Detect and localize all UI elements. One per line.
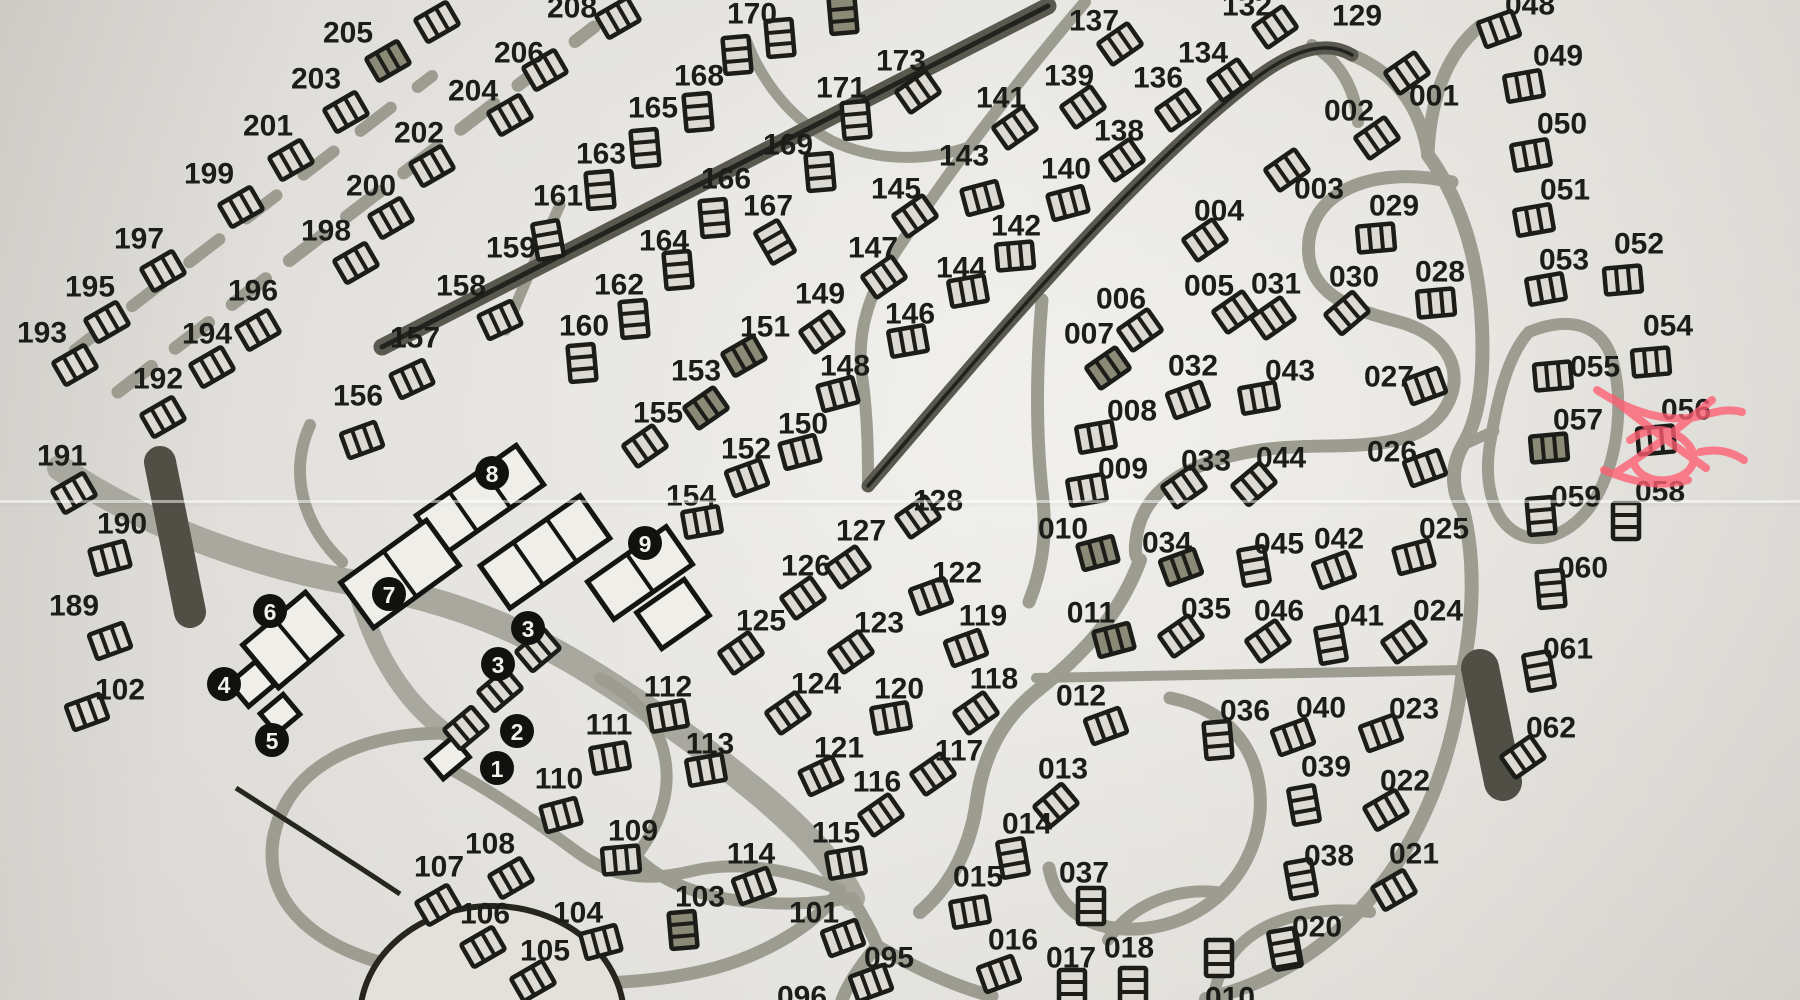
lot-label: 018 [1104,932,1154,965]
cabin-icon [722,36,751,74]
cabin-stripe [845,125,869,127]
cabin-icon [828,0,857,34]
lot-label: 022 [1380,765,1430,798]
road-vertical-007 [1029,300,1044,602]
lot-label: 138 [1094,115,1144,148]
cabin-icon [1372,870,1416,911]
lot-label: 027 [1364,361,1414,394]
lot-label: 016 [988,924,1038,957]
cabin-icon [826,546,870,588]
cabin-outline [1313,552,1356,589]
cabin-outline [755,220,796,264]
cabin-stripe [633,141,657,143]
cabin-icon [619,300,648,338]
lot-label: 013 [1038,753,1088,786]
lot-label: 061 [1543,633,1593,666]
cabin-outline [141,251,185,292]
cabin-outline [826,546,870,588]
cabin-outline [580,925,622,959]
lot-label: 030 [1329,261,1379,294]
road-curve-192 [300,425,342,562]
cabin-stripe [588,183,612,185]
lot-label: 034 [1142,527,1192,560]
lot-label: 126 [781,550,831,583]
lot-label: 036 [1220,695,1270,728]
cabin-icon [567,344,596,382]
lot-label: 096 [777,981,827,1000]
cabin-icon [1504,70,1544,102]
lot-label: 020 [1292,911,1342,944]
cabin-outline [89,623,132,660]
cabin-stripe [1554,436,1556,460]
lot-label: 004 [1194,195,1244,228]
cabin-icon [683,93,712,131]
lot-label: 003 [1294,173,1344,206]
cabin-icon [415,2,459,43]
lot-label: 041 [1334,600,1384,633]
cabin-outline [410,146,454,187]
cabin-outline [1504,70,1544,102]
lot-label: 144 [936,252,986,285]
lot-label: 123 [854,607,904,640]
lot-label: 115 [812,817,860,850]
lot-label: 194 [182,318,232,351]
lot-label: 189 [49,590,99,623]
lot-label: 015 [953,861,1003,894]
cabin-outline [841,101,870,139]
cabin-stripe [844,113,868,115]
cabin-outline [567,344,596,382]
cabin-stripe [622,312,646,314]
cabin-outline [683,93,712,131]
cabin-stripe [1529,509,1553,511]
cabin-stripe [1369,227,1371,251]
lot-label: 046 [1254,595,1304,628]
cabin-icon [1078,888,1104,924]
lot-label: 145 [871,173,921,206]
cabin-stripe [686,105,710,107]
cabin-icon [585,171,614,209]
cabin-icon [540,798,582,832]
cabin-icon [89,623,132,660]
lot-label: 114 [727,838,776,871]
cabin-stripe [626,848,628,872]
cabin-stripe [1429,292,1431,316]
cabin-outline [950,896,990,928]
lot-label: 125 [736,605,786,638]
cabin-stripe [667,275,691,277]
cabin-outline [668,911,697,949]
facility-marker-7: 7 [372,577,406,611]
lot-label: 157 [390,322,440,355]
lot-label: 045 [1254,528,1304,561]
cabin-stripe [634,153,658,155]
cabin-stripe [808,165,832,167]
lot-label: 165 [628,92,678,125]
cabin-icon [341,422,384,459]
lot-label: 023 [1389,693,1439,726]
cabin-icon [826,847,866,879]
cabin-outline [800,311,844,353]
cabin-stripe [672,935,696,937]
lot-label: 197 [114,223,164,256]
cabin-stripe [614,849,616,873]
cabin-icon [668,911,697,949]
lot-label: 049 [1533,40,1583,73]
cabin-icon [1120,968,1146,1000]
lot-label: 005 [1184,270,1234,303]
lot-label: 151 [740,311,790,344]
lot-label: 101 [789,897,839,930]
cabin-outline [415,2,459,43]
lot-label: 038 [1304,840,1354,873]
paper-fold-crease [0,500,1800,503]
scanned-site-map: 1951931971992012032051961941921911901891… [0,0,1800,1000]
facility-marker-number: 5 [266,728,279,754]
cabin-outline [719,632,763,674]
cabin-stripe [832,20,856,22]
cabin-outline [1514,204,1554,236]
cabin-outline [623,425,667,467]
cabin-stripe [1546,365,1548,389]
cabin-outline [1372,870,1416,911]
cabin-icon [755,220,796,264]
lot-label: 048 [1505,0,1555,22]
lot-label: 029 [1369,190,1419,223]
cabin-stripe [726,60,750,62]
cabin-stripe [1542,437,1544,461]
cabin-outline [1206,940,1232,976]
lot-label: 154 [666,480,716,513]
cabin-outline [369,198,413,239]
cabin-stripe [570,356,594,358]
cabin-icon [1085,708,1128,745]
lot-label: 200 [346,170,396,203]
cabin-outline [540,798,582,832]
lot-label: 206 [494,37,544,70]
cabin-icon [699,199,728,237]
cabin-stripe [571,368,595,370]
cabin-stripe [666,263,690,265]
lot-label: 150 [778,408,828,441]
dark-patch-left [160,462,190,612]
lot-label: 052 [1614,228,1664,261]
cabin-icon [1526,273,1566,305]
cabin-outline [954,692,998,734]
lot-label: 149 [795,278,845,311]
lot-label: 107 [414,851,464,884]
cabin-outline [945,630,988,667]
facility-marker-number: 2 [511,719,524,745]
cabin-icon [390,360,434,399]
dark-patch-right [1480,668,1503,782]
lot-label: 105 [520,935,570,968]
lot-label: 171 [816,72,866,105]
lot-label: 170 [727,0,777,31]
lot-label: 142 [991,210,1041,243]
cabin-outline [602,845,640,874]
lot-label: 167 [743,190,793,223]
lot-label: 104 [553,897,603,930]
cabin-icon [950,896,990,928]
cabin-outline [1251,297,1295,339]
lot-label: 037 [1059,857,1109,890]
cabin-icon [596,0,640,38]
cabin-outline [89,541,131,575]
lot-label: 162 [594,269,644,302]
lot-label: 112 [644,671,692,704]
lot-label: 160 [559,310,609,343]
lot-label: 168 [674,60,724,93]
cabin-outline [996,241,1034,270]
cabin-icon [1511,139,1551,171]
cabin-outline [1086,347,1130,389]
cabin-outline [1604,265,1642,294]
cabin-outline [1511,139,1551,171]
cabin-outline [1078,888,1104,924]
cabin-outline [684,387,728,429]
facility-marker-3: 3 [481,647,515,681]
cabin-stripe [1656,350,1658,374]
cabin-icon [478,301,522,340]
lot-label: 204 [448,75,498,108]
lot-label: 113 [686,728,734,761]
lot-label: 127 [836,515,886,548]
cabin-icon [590,742,630,774]
lot-label: 010 [1205,982,1255,1000]
cabin-outline [1526,273,1566,305]
lot-label: 060 [1558,552,1608,585]
cabin-outline [1417,288,1455,317]
cabin-icon [1047,186,1089,220]
cabin-stripe [1540,594,1564,596]
cabin-icon [53,345,97,386]
lot-label: 014 [1002,808,1052,841]
cabin-icon [1288,785,1320,825]
cabin-outline [53,345,97,386]
lot-label: 110 [535,763,583,796]
facility-marker-8: 8 [475,456,509,490]
cabin-stripe [831,8,855,10]
lot-label: 191 [37,440,87,473]
cabin-stripe [1558,364,1560,388]
lot-label: 007 [1064,318,1114,351]
facility-marker-6: 6 [253,594,287,628]
facility-marker-number: 8 [486,461,499,487]
lot-label: 136 [1133,62,1183,95]
lot-label: 024 [1413,595,1463,628]
lot-label: 057 [1553,404,1603,437]
cabin-icon [800,311,844,353]
lot-label: 134 [1178,37,1228,70]
cabin-icon [410,146,454,187]
lot-label: 201 [243,110,293,143]
lot-label: 001 [1409,80,1459,113]
lot-label: 051 [1540,174,1590,207]
cabin-outline [334,243,378,284]
cabin-icon [1357,223,1395,252]
lot-label: 118 [970,663,1018,696]
cabin-outline [190,347,234,388]
lot-label: 132 [1222,0,1272,23]
cabin-outline [1357,223,1395,252]
cabin-icon [978,956,1021,993]
cabin-stripe [1628,268,1630,292]
cabin-stripe [623,324,647,326]
lot-label: 021 [1389,838,1439,871]
cabin-stripe [769,43,793,45]
lot-label: 202 [394,117,444,150]
cabin-icon [1604,265,1642,294]
cabin-icon [190,347,234,388]
cabin-icon [719,632,763,674]
cabin-outline [648,700,688,732]
lot-label: 035 [1181,593,1231,626]
cabin-icon [1530,433,1568,462]
cabin-outline [1085,708,1128,745]
lot-label: 006 [1096,283,1146,316]
cabin-stripe [1530,521,1554,523]
cabin-outline [699,199,728,237]
cabin-icon [580,925,622,959]
cabin-stripe [1207,745,1231,747]
cabin-stripe [1644,351,1646,375]
facility-marker-4: 4 [207,667,241,701]
lot-label: 109 [608,815,658,848]
facility-marker-5: 5 [255,723,289,757]
lot-label: 129 [1332,0,1382,33]
lot-label: 155 [633,397,683,430]
lot-label: 033 [1181,445,1231,478]
lot-label: 055 [1570,351,1620,384]
cabin-stripe [1206,733,1230,735]
cabin-outline [781,577,825,619]
cabin-stripe [687,117,711,119]
boundary-line [236,788,400,894]
cabin-stripe [1441,291,1443,315]
cabin-icon [219,187,263,228]
lot-label: 169 [763,129,813,162]
lot-label: 009 [1098,453,1148,486]
cabin-stripe [768,31,792,33]
cabin-icon [236,310,280,351]
cabin-icon [1251,297,1295,339]
lot-label: 190 [97,508,147,541]
cabin-outline [489,858,533,899]
lot-label: 153 [671,355,721,388]
cabin-icon [369,198,413,239]
lot-label: 040 [1296,692,1346,725]
facility-marker-number: 3 [522,616,535,642]
cabin-icon [489,858,533,899]
lot-label: 054 [1643,310,1693,343]
facility-marker-number: 9 [639,531,652,557]
lot-label: 148 [820,350,870,383]
lot-label: 122 [932,557,982,590]
cabin-icon [781,577,825,619]
cabin-outline [630,129,659,167]
cabin-outline [978,956,1021,993]
lot-label: 010 [1038,513,1088,546]
facility-marker-9: 9 [628,526,662,560]
cabin-outline [722,36,751,74]
lot-label: 043 [1265,355,1315,388]
cabin-outline [859,794,903,836]
lot-label: 199 [184,158,234,191]
facility-marker-number: 6 [264,599,277,625]
lot-label: 103 [675,881,725,914]
lot-label: 140 [1041,153,1091,186]
cabin-outline [219,187,263,228]
cabin-icon [1059,970,1085,1000]
lot-label: 050 [1537,108,1587,141]
lot-label: 203 [291,63,341,96]
facility-marker-3: 3 [511,611,545,645]
lot-label: 119 [959,600,1007,633]
cabin-icon [841,101,870,139]
lot-label: 106 [460,898,510,931]
cabin-icon [1313,552,1356,589]
cabin-icon [945,630,988,667]
facility-marker-number: 4 [218,672,231,698]
cabin-outline [532,220,564,260]
lot-label: 124 [791,668,841,701]
lot-label: 121 [814,732,864,765]
cabin-icon [89,541,131,575]
cabin-outline [828,0,857,34]
cabin-outline [1167,382,1210,419]
lot-label: 196 [228,275,278,308]
cabin-outline [1120,968,1146,1000]
lot-label: 163 [576,138,626,171]
cabin-icon [1417,288,1455,317]
cabin-outline [1534,361,1572,390]
cabin-icon [602,845,640,874]
cabin-icon [1206,940,1232,976]
cabin-stripe [725,48,749,50]
facility-marker-number: 7 [383,582,396,608]
lot-label: 095 [864,942,914,975]
cabin-icon [1086,347,1130,389]
cabin-outline [1047,186,1089,220]
lot-label: 102 [95,674,145,707]
cabin-stripe [702,211,726,213]
lot-label: 147 [848,232,898,265]
cabin-icon [623,425,667,467]
lot-label: 173 [876,45,926,78]
lot-label: 032 [1168,350,1218,383]
facility-marker-number: 1 [491,756,504,782]
lot-label: 002 [1324,95,1374,128]
cabin-icon [532,220,564,260]
lot-label: 108 [465,828,515,861]
cabin-stripe [1020,244,1022,268]
lot-label: 012 [1056,680,1106,713]
cabin-stripe [703,223,727,225]
cabin-outline [826,847,866,879]
lot-label: 158 [436,270,486,303]
cabin-icon [1514,204,1554,236]
cabin-outline [478,301,522,340]
lot-label: 039 [1301,751,1351,784]
lot-label: 031 [1251,268,1301,301]
cabin-icon [648,700,688,732]
lot-label: 008 [1107,395,1157,428]
cabin-outline [390,360,434,399]
facility-marker-number: 3 [492,652,505,678]
lot-label: 205 [323,17,373,50]
lot-label: 059 [1551,481,1601,514]
